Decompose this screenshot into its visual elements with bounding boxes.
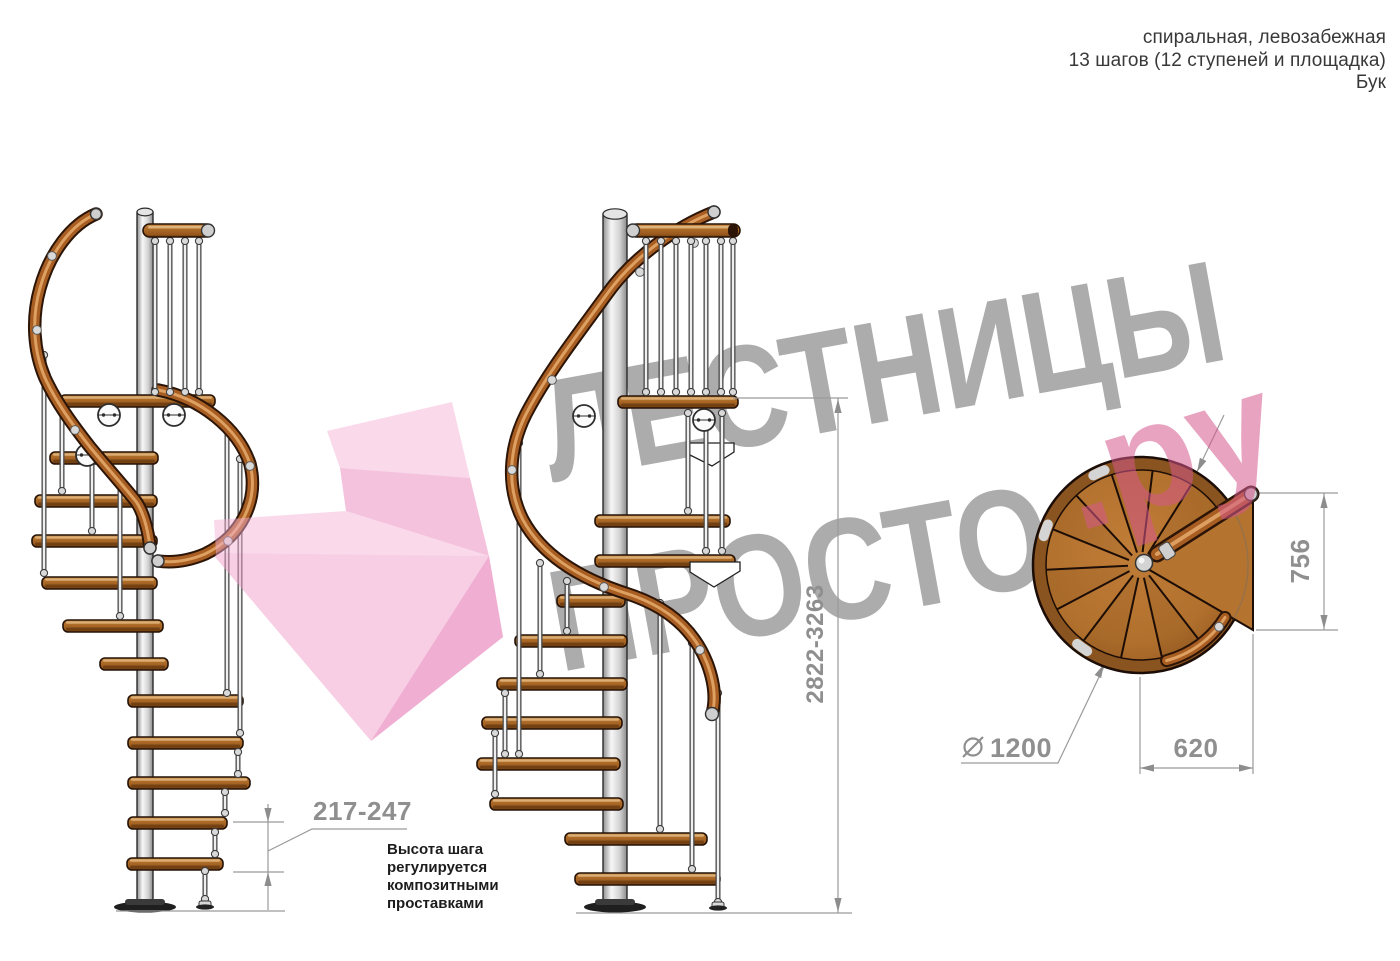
- dim-platform-depth: 756: [1285, 539, 1315, 584]
- dim-total-height: 2822-3263: [802, 584, 829, 703]
- arrow-watermark: [214, 402, 503, 741]
- diameter-icon: [963, 737, 983, 757]
- title-line-material: Бук: [1069, 72, 1386, 95]
- title-line-type: спиральная, левозабежная: [1069, 27, 1386, 50]
- title-line-steps: 13 шагов (12 ступеней и площадка): [1069, 50, 1386, 73]
- title-block: спиральная, левозабежная 13 шагов (12 ст…: [1069, 27, 1386, 95]
- dim-platform-width: 620: [1174, 733, 1219, 763]
- step-height-note: Высота шага регулируется композитными пр…: [387, 841, 527, 913]
- dim-step-height: 217-247: [313, 796, 412, 826]
- drawing-page: спиральная, левозабежная 13 шагов (12 ст…: [0, 0, 1400, 961]
- dim-diameter: 1200: [990, 733, 1052, 763]
- drawing-scene: ЛЕСТНИЦЫ ПРОСТО 2822-3263 217-247 756 62…: [0, 0, 1400, 961]
- staircase-side-view-right: [477, 206, 740, 913]
